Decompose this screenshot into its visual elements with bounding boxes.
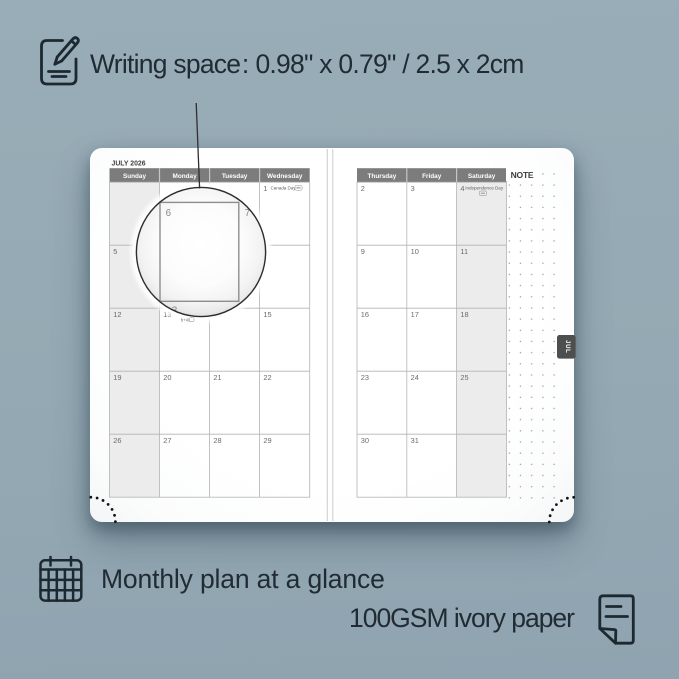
svg-text:Independence Day: Independence Day	[465, 186, 504, 191]
svg-text:16: 16	[361, 310, 369, 319]
svg-text:28: 28	[213, 436, 221, 445]
svg-text:6: 6	[166, 208, 172, 219]
svg-text:22: 22	[263, 373, 271, 382]
svg-text:18: 18	[460, 310, 468, 319]
svg-text:Sunday: Sunday	[123, 173, 147, 180]
svg-text:Friday: Friday	[422, 173, 442, 180]
svg-text:11: 11	[460, 247, 468, 256]
svg-text:5: 5	[113, 247, 117, 256]
svg-text:Canada Day: Canada Day	[271, 186, 297, 191]
svg-text:17: 17	[411, 310, 419, 319]
svg-text:25: 25	[460, 373, 468, 382]
svg-text:10: 10	[411, 247, 419, 256]
svg-text:Wednesday: Wednesday	[267, 173, 303, 180]
svg-text:Monday: Monday	[173, 173, 198, 180]
svg-text:27: 27	[163, 436, 171, 445]
svg-text:1: 1	[263, 184, 267, 193]
svg-text:29: 29	[263, 436, 271, 445]
svg-text:23: 23	[361, 373, 369, 382]
svg-text:Saturday: Saturday	[468, 173, 496, 180]
svg-text:Tuesday: Tuesday	[222, 173, 248, 180]
svg-text:19: 19	[113, 373, 121, 382]
svg-text:JULY 2026: JULY 2026	[112, 161, 146, 168]
svg-text:15: 15	[263, 310, 271, 319]
svg-text:26: 26	[113, 436, 121, 445]
svg-text:9: 9	[361, 247, 365, 256]
svg-text:30: 30	[361, 436, 369, 445]
svg-text:31: 31	[411, 436, 419, 445]
svg-text:20: 20	[163, 373, 171, 382]
svg-text:JUL: JUL	[564, 340, 570, 353]
svg-text:2: 2	[361, 184, 365, 193]
svg-text:3: 3	[411, 184, 415, 193]
svg-text:4: 4	[460, 184, 464, 193]
svg-text:NOTE: NOTE	[511, 170, 534, 180]
svg-text:12: 12	[113, 310, 121, 319]
svg-text:21: 21	[213, 373, 221, 382]
svg-text:24: 24	[411, 373, 419, 382]
svg-text:Thursday: Thursday	[368, 173, 397, 180]
